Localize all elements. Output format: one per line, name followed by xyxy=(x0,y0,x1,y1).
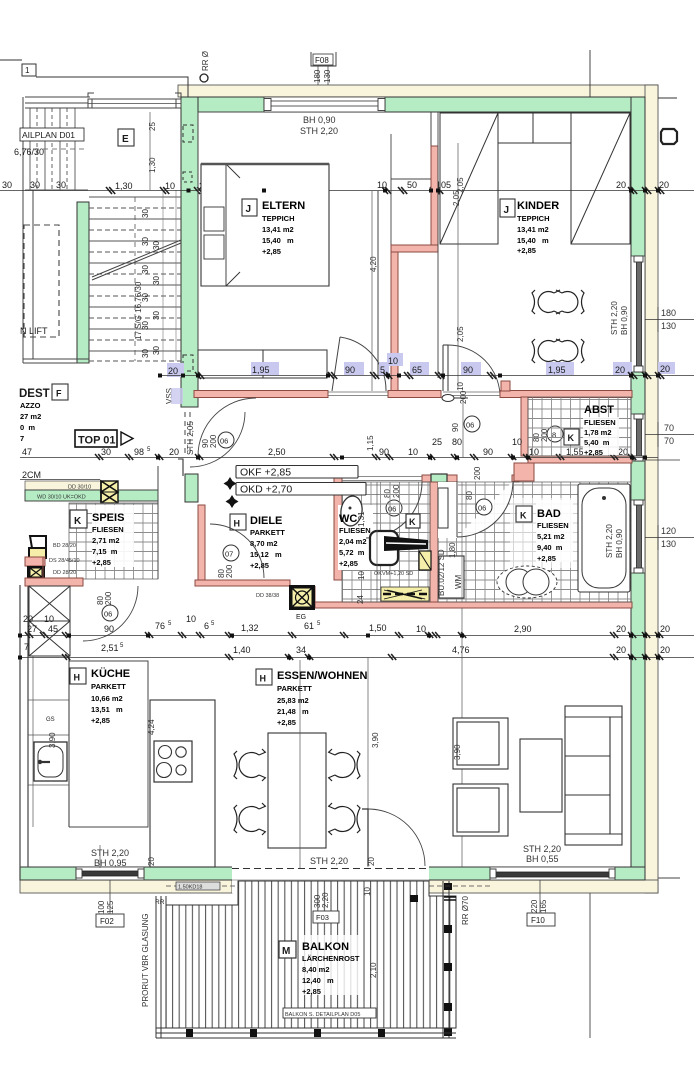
svg-text:0 m: 0 m xyxy=(20,423,35,432)
svg-text:+2,85: +2,85 xyxy=(302,987,321,996)
svg-text:200: 200 xyxy=(104,591,113,605)
svg-text:BD 28/20: BD 28/20 xyxy=(53,543,76,549)
svg-text:47: 47 xyxy=(22,447,32,457)
svg-text:KINDER: KINDER xyxy=(517,200,559,212)
svg-text:1,31: 1,31 xyxy=(357,511,366,527)
svg-text:120: 120 xyxy=(661,526,676,536)
svg-text:1,95: 1,95 xyxy=(252,365,270,375)
svg-text:30: 30 xyxy=(152,241,161,250)
svg-text:+2,85: +2,85 xyxy=(537,554,556,563)
svg-text:90: 90 xyxy=(345,365,355,375)
svg-text:90: 90 xyxy=(463,365,473,375)
svg-text:+2,85: +2,85 xyxy=(277,718,296,727)
svg-text:+2,85: +2,85 xyxy=(339,559,358,568)
svg-text:15,40 m: 15,40 m xyxy=(517,236,549,245)
svg-text:20: 20 xyxy=(367,857,376,866)
svg-text:RR Ø: RR Ø xyxy=(201,51,210,71)
svg-text:7: 7 xyxy=(24,642,29,652)
svg-text:BU.02/12 SD: BU.02/12 SD xyxy=(437,549,446,596)
svg-text:20: 20 xyxy=(660,624,670,634)
svg-text:13,41 m2: 13,41 m2 xyxy=(262,225,294,234)
svg-text:20: 20 xyxy=(616,624,626,634)
svg-text:5,72 m: 5,72 m xyxy=(339,548,365,557)
svg-text:80: 80 xyxy=(452,437,462,447)
svg-text:130: 130 xyxy=(661,321,676,331)
svg-text:J: J xyxy=(504,205,510,216)
svg-text:180: 180 xyxy=(313,69,322,83)
svg-text:125: 125 xyxy=(106,900,115,914)
svg-text:9,40 m: 9,40 m xyxy=(537,543,563,552)
svg-text:10: 10 xyxy=(363,887,372,896)
svg-text:1,30: 1,30 xyxy=(148,157,157,173)
svg-text:PARKETT: PARKETT xyxy=(250,528,285,537)
svg-text:200: 200 xyxy=(459,390,468,404)
svg-text:WM: WM xyxy=(454,574,463,589)
svg-text:3,90: 3,90 xyxy=(371,732,380,748)
svg-text:50: 50 xyxy=(407,180,417,190)
svg-text:N LIFT: N LIFT xyxy=(20,326,48,336)
svg-text:AZZO: AZZO xyxy=(20,401,41,410)
svg-text:10: 10 xyxy=(357,571,366,580)
svg-text:8,40 m2: 8,40 m2 xyxy=(302,965,330,974)
svg-text:BALKON: BALKON xyxy=(302,941,349,953)
svg-text:30: 30 xyxy=(152,346,161,355)
svg-text:GS: GS xyxy=(46,717,55,723)
svg-text:+2,85: +2,85 xyxy=(250,561,269,570)
svg-text:25: 25 xyxy=(432,437,442,447)
svg-text:25,83 m2: 25,83 m2 xyxy=(277,696,309,705)
svg-text:80: 80 xyxy=(465,491,474,500)
svg-text:2,04 m2: 2,04 m2 xyxy=(339,537,367,546)
svg-text:24: 24 xyxy=(356,595,365,604)
svg-text:+2,85: +2,85 xyxy=(517,246,536,255)
svg-text:20: 20 xyxy=(616,180,626,190)
svg-text:STH 2,20: STH 2,20 xyxy=(310,856,348,866)
svg-text:13,51 m: 13,51 m xyxy=(91,705,123,714)
svg-text:30: 30 xyxy=(152,311,161,320)
svg-text:OKF +2,85: OKF +2,85 xyxy=(240,467,291,479)
svg-text:06: 06 xyxy=(104,610,112,619)
svg-text:76: 76 xyxy=(155,621,165,631)
svg-text:LÄRCHENROST: LÄRCHENROST xyxy=(302,954,360,963)
svg-text:30: 30 xyxy=(152,276,161,285)
svg-text:STH 2,20: STH 2,20 xyxy=(605,524,614,558)
svg-text:20: 20 xyxy=(660,645,670,655)
svg-text:K: K xyxy=(409,517,416,527)
svg-text:TEPPICH: TEPPICH xyxy=(262,214,295,223)
svg-text:20: 20 xyxy=(660,364,670,374)
svg-text:BH 0,90: BH 0,90 xyxy=(615,529,624,558)
svg-text:45: 45 xyxy=(48,624,58,634)
svg-text:1,40: 1,40 xyxy=(233,645,251,655)
svg-text:DD 38/38: DD 38/38 xyxy=(256,593,279,599)
svg-text:220: 220 xyxy=(530,899,539,913)
svg-text:WD 30/10 UK=OKD: WD 30/10 UK=OKD xyxy=(37,495,86,501)
svg-text:30: 30 xyxy=(141,265,150,274)
svg-text:1,95: 1,95 xyxy=(548,365,566,375)
svg-text:F10: F10 xyxy=(531,916,545,925)
svg-text:1,30: 1,30 xyxy=(115,181,133,191)
svg-text:K: K xyxy=(520,511,527,521)
svg-text:+2,85: +2,85 xyxy=(584,448,603,457)
svg-text:90: 90 xyxy=(379,447,389,457)
svg-text:30: 30 xyxy=(141,209,150,218)
svg-text:30: 30 xyxy=(101,447,111,457)
svg-text:KÜCHE: KÜCHE xyxy=(91,667,130,680)
svg-text:SPEIS: SPEIS xyxy=(92,512,124,524)
svg-text:E: E xyxy=(122,134,129,145)
svg-text:DS 28/45/10: DS 28/45/10 xyxy=(49,558,80,564)
svg-text:OKD +2,70: OKD +2,70 xyxy=(240,484,292,496)
svg-text:10: 10 xyxy=(456,382,465,391)
svg-text:2,90: 2,90 xyxy=(514,624,532,634)
svg-text:H: H xyxy=(74,673,81,683)
svg-text:F02: F02 xyxy=(100,917,114,926)
svg-text:20: 20 xyxy=(169,447,179,457)
svg-text:70: 70 xyxy=(664,423,674,433)
svg-text:61: 61 xyxy=(304,621,314,631)
svg-text:10: 10 xyxy=(388,356,398,366)
svg-text:BAD: BAD xyxy=(537,508,561,520)
svg-text:FLIESEN: FLIESEN xyxy=(92,525,124,534)
svg-text:1: 1 xyxy=(25,66,30,75)
svg-text:TEPPICH: TEPPICH xyxy=(517,214,550,223)
svg-text:H: H xyxy=(260,674,267,684)
svg-text:ESSEN/WOHNEN: ESSEN/WOHNEN xyxy=(277,670,368,682)
svg-text:AILPLAN D01: AILPLAN D01 xyxy=(22,130,75,140)
svg-text:STH 2,20: STH 2,20 xyxy=(300,126,338,136)
svg-text:FLIESEN: FLIESEN xyxy=(537,521,569,530)
svg-text:17 S/G 16,76/30: 17 S/G 16,76/30 xyxy=(134,281,143,340)
svg-text:STH 2,20: STH 2,20 xyxy=(523,844,561,854)
svg-text:EG: EG xyxy=(296,614,306,621)
svg-text:J: J xyxy=(246,204,252,215)
svg-text:130: 130 xyxy=(323,69,332,83)
svg-text:1,80: 1,80 xyxy=(448,542,457,558)
svg-text:BALKON S. DETAILPLAN D05: BALKON S. DETAILPLAN D05 xyxy=(285,1012,360,1018)
svg-text:7,15 m: 7,15 m xyxy=(92,547,118,556)
svg-text:20: 20 xyxy=(616,645,626,655)
svg-text:3,90: 3,90 xyxy=(453,744,462,760)
svg-text:6,76/30: 6,76/30 xyxy=(14,147,44,157)
svg-text:STH 2,20: STH 2,20 xyxy=(610,301,619,335)
svg-text:98: 98 xyxy=(134,447,144,457)
svg-text:30: 30 xyxy=(141,237,150,246)
svg-text:1.50KD18: 1.50KD18 xyxy=(178,885,202,891)
svg-text:DIELE: DIELE xyxy=(250,515,282,527)
svg-text:OKVM+1,20 SD: OKVM+1,20 SD xyxy=(374,571,413,577)
svg-text:21,48 m: 21,48 m xyxy=(277,707,309,716)
svg-text:5,40 m: 5,40 m xyxy=(584,438,610,447)
svg-text:90: 90 xyxy=(483,447,493,457)
svg-text:BH 0,90: BH 0,90 xyxy=(303,115,336,125)
svg-text:20: 20 xyxy=(147,857,156,866)
svg-text:10: 10 xyxy=(512,437,522,447)
svg-text:+2,85: +2,85 xyxy=(91,716,110,725)
svg-text:K: K xyxy=(74,516,82,527)
svg-text:2,71 m2: 2,71 m2 xyxy=(92,536,120,545)
svg-text:15,12 m: 15,12 m xyxy=(250,550,282,559)
svg-text:PRORUT VBR GLASUNG: PRORUT VBR GLASUNG xyxy=(141,913,150,1007)
svg-text:1,78 m2: 1,78 m2 xyxy=(584,428,612,437)
svg-text:FLIESEN: FLIESEN xyxy=(584,418,616,427)
svg-text:5,21 m2: 5,21 m2 xyxy=(537,532,565,541)
svg-text:200: 200 xyxy=(473,466,482,480)
svg-text:F: F xyxy=(56,389,62,399)
svg-text:10: 10 xyxy=(44,614,54,624)
svg-text:M: M xyxy=(282,946,290,957)
svg-text:27 m2: 27 m2 xyxy=(20,412,41,421)
svg-text:130: 130 xyxy=(661,539,676,549)
svg-text:2,05: 2,05 xyxy=(456,326,465,342)
svg-text:STH 2,05: STH 2,05 xyxy=(186,421,195,455)
svg-text:RR: RR xyxy=(155,899,165,906)
svg-text:30: 30 xyxy=(141,349,150,358)
svg-text:DD 28/20: DD 28/20 xyxy=(53,570,76,576)
svg-text:12,40 m: 12,40 m xyxy=(302,976,334,985)
svg-text:30: 30 xyxy=(30,180,40,190)
svg-text:100: 100 xyxy=(97,900,106,914)
svg-text:90: 90 xyxy=(104,624,114,634)
svg-text:30: 30 xyxy=(56,180,66,190)
svg-text:2,10: 2,10 xyxy=(369,962,378,978)
svg-text:15,40 m: 15,40 m xyxy=(262,236,294,245)
svg-text:ABST: ABST xyxy=(584,404,614,416)
svg-text:10: 10 xyxy=(408,447,418,457)
svg-text:13,41 m2: 13,41 m2 xyxy=(517,225,549,234)
svg-text:BH 0,95: BH 0,95 xyxy=(94,858,127,868)
svg-text:06: 06 xyxy=(466,421,474,430)
svg-text:6: 6 xyxy=(204,621,209,631)
svg-text:2,05: 2,05 xyxy=(456,177,465,193)
svg-text:BH 0,55: BH 0,55 xyxy=(526,854,559,864)
svg-text:2,20: 2,20 xyxy=(321,892,330,908)
svg-text:06: 06 xyxy=(220,437,228,446)
svg-text:3,90: 3,90 xyxy=(48,732,57,748)
svg-text:F08: F08 xyxy=(315,56,329,65)
svg-text:H: H xyxy=(234,519,241,529)
svg-text:TOP 01: TOP 01 xyxy=(78,435,116,447)
svg-text:10: 10 xyxy=(165,181,175,191)
svg-text:180: 180 xyxy=(661,308,676,318)
svg-text:30: 30 xyxy=(141,293,150,302)
svg-text:10: 10 xyxy=(186,614,196,624)
svg-text:7: 7 xyxy=(20,434,24,443)
svg-text:1,15: 1,15 xyxy=(366,435,375,451)
svg-text:+2,85: +2,85 xyxy=(262,247,281,256)
svg-text:2,50: 2,50 xyxy=(268,447,286,457)
svg-text:70: 70 xyxy=(664,436,674,446)
svg-text:4,76: 4,76 xyxy=(452,645,470,655)
svg-text:2CM: 2CM xyxy=(22,470,41,480)
svg-text:STH 2,20: STH 2,20 xyxy=(91,848,129,858)
svg-text:BH 0,90: BH 0,90 xyxy=(620,306,629,335)
svg-text:RR Ø70: RR Ø70 xyxy=(461,896,470,925)
svg-text:25: 25 xyxy=(148,122,157,131)
svg-text:PARKETT: PARKETT xyxy=(91,682,126,691)
svg-text:07: 07 xyxy=(225,550,233,559)
svg-text:30: 30 xyxy=(2,180,12,190)
svg-text:34: 34 xyxy=(296,645,306,655)
svg-text:F03: F03 xyxy=(316,913,329,922)
svg-text:2,51: 2,51 xyxy=(101,643,119,653)
svg-text:4,24: 4,24 xyxy=(147,719,156,735)
svg-text:+2,85: +2,85 xyxy=(92,558,111,567)
svg-text:200: 200 xyxy=(209,434,218,448)
svg-text:06: 06 xyxy=(478,504,486,513)
svg-text:20: 20 xyxy=(23,614,33,624)
svg-text:10,66 m2: 10,66 m2 xyxy=(91,694,123,703)
svg-text:65: 65 xyxy=(412,365,422,375)
svg-text:20: 20 xyxy=(168,366,178,376)
svg-text:4,20: 4,20 xyxy=(369,256,378,272)
svg-text:90: 90 xyxy=(451,423,460,432)
svg-text:1,50: 1,50 xyxy=(369,623,387,633)
svg-text:ELTERN: ELTERN xyxy=(262,200,305,212)
svg-text:1,32: 1,32 xyxy=(241,623,259,633)
svg-text:30: 30 xyxy=(141,321,150,330)
svg-text:WC: WC xyxy=(339,513,357,525)
svg-text:K: K xyxy=(568,433,575,443)
svg-text:200: 200 xyxy=(225,564,234,578)
svg-text:DEST: DEST xyxy=(19,388,50,400)
svg-text:PARKETT: PARKETT xyxy=(277,684,312,693)
svg-text:20: 20 xyxy=(615,365,625,375)
